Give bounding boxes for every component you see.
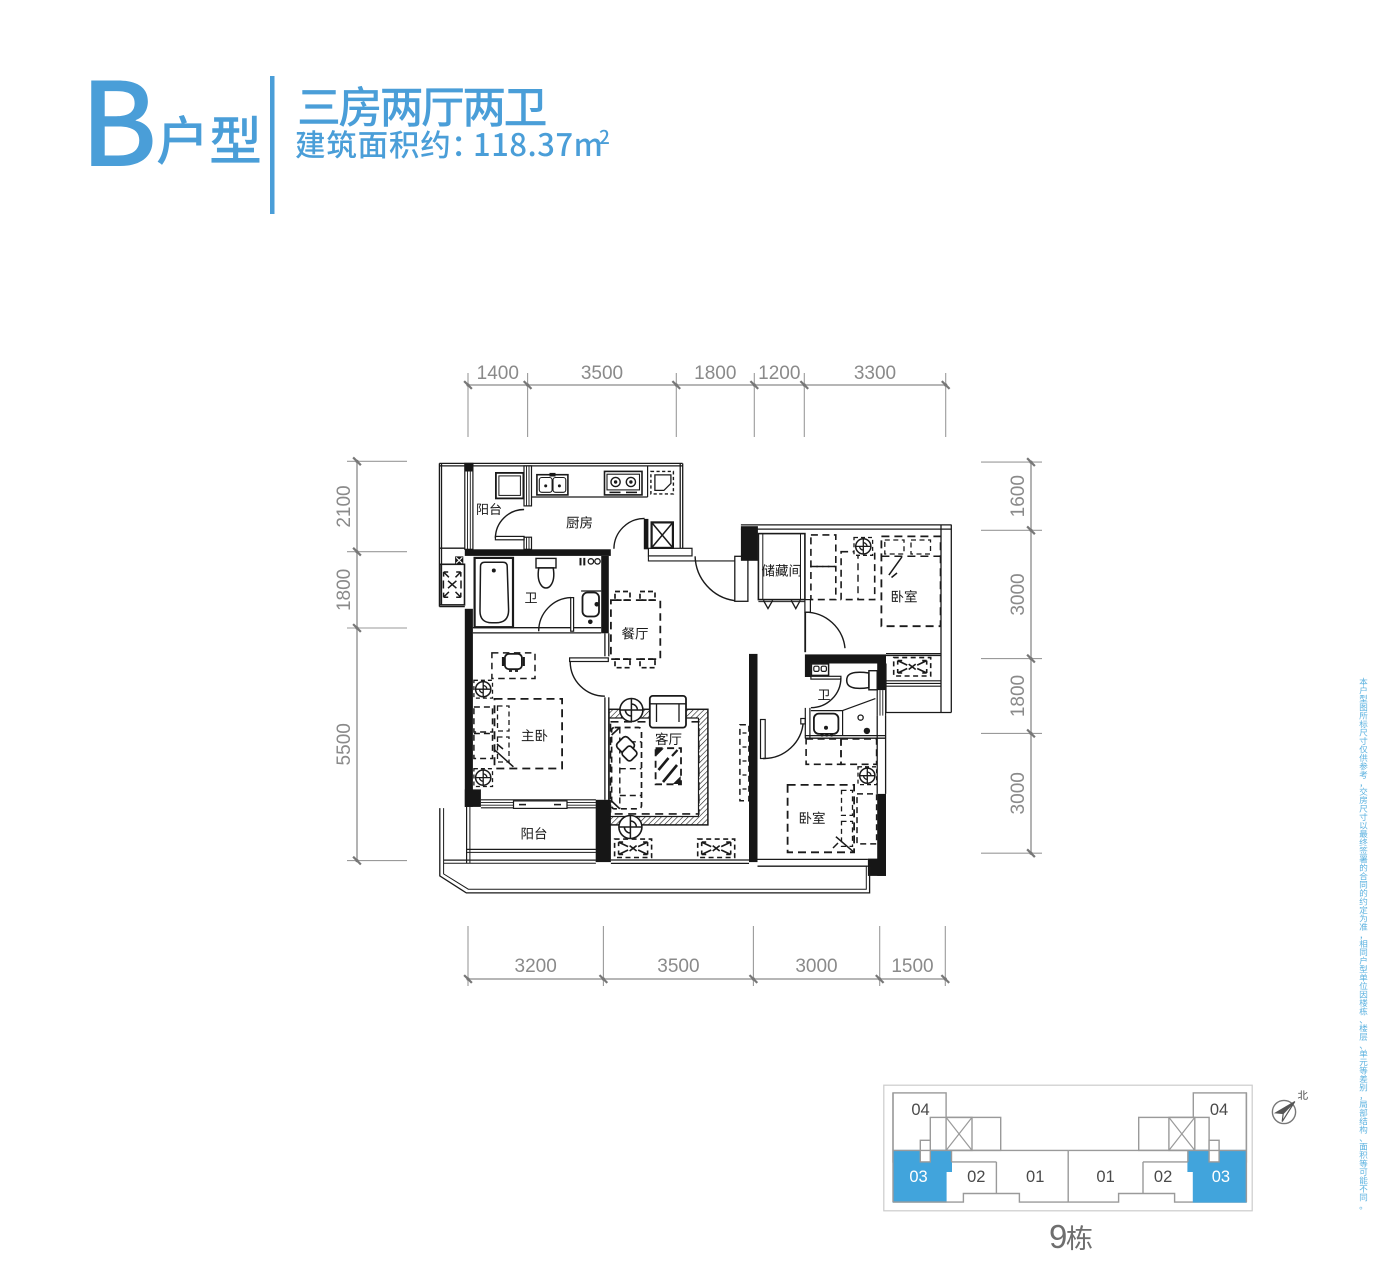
- svg-text:3000: 3000: [1008, 772, 1029, 814]
- svg-text:1500: 1500: [891, 956, 933, 977]
- svg-text:1800: 1800: [694, 363, 736, 384]
- svg-text:5500: 5500: [334, 723, 355, 765]
- svg-text:04: 04: [1210, 1101, 1228, 1119]
- svg-text:02: 02: [967, 1168, 985, 1186]
- svg-text:1200: 1200: [758, 363, 800, 384]
- svg-text:3500: 3500: [581, 363, 623, 384]
- svg-text:02: 02: [1154, 1168, 1172, 1186]
- svg-text:3500: 3500: [657, 956, 699, 977]
- svg-text:1800: 1800: [334, 569, 355, 611]
- svg-text:1400: 1400: [477, 363, 519, 384]
- svg-text:9: 9: [1049, 1218, 1067, 1255]
- svg-text:3000: 3000: [795, 956, 837, 977]
- svg-text:1800: 1800: [1008, 675, 1029, 717]
- svg-text:3000: 3000: [1008, 573, 1029, 615]
- svg-text:3300: 3300: [854, 363, 896, 384]
- svg-text:2100: 2100: [334, 485, 355, 527]
- svg-text:04: 04: [911, 1101, 929, 1119]
- svg-text:03: 03: [909, 1168, 927, 1186]
- svg-text:03: 03: [1212, 1168, 1230, 1186]
- svg-text:01: 01: [1026, 1168, 1044, 1186]
- svg-text:3200: 3200: [515, 956, 557, 977]
- svg-text:1600: 1600: [1008, 475, 1029, 517]
- svg-text:01: 01: [1096, 1168, 1114, 1186]
